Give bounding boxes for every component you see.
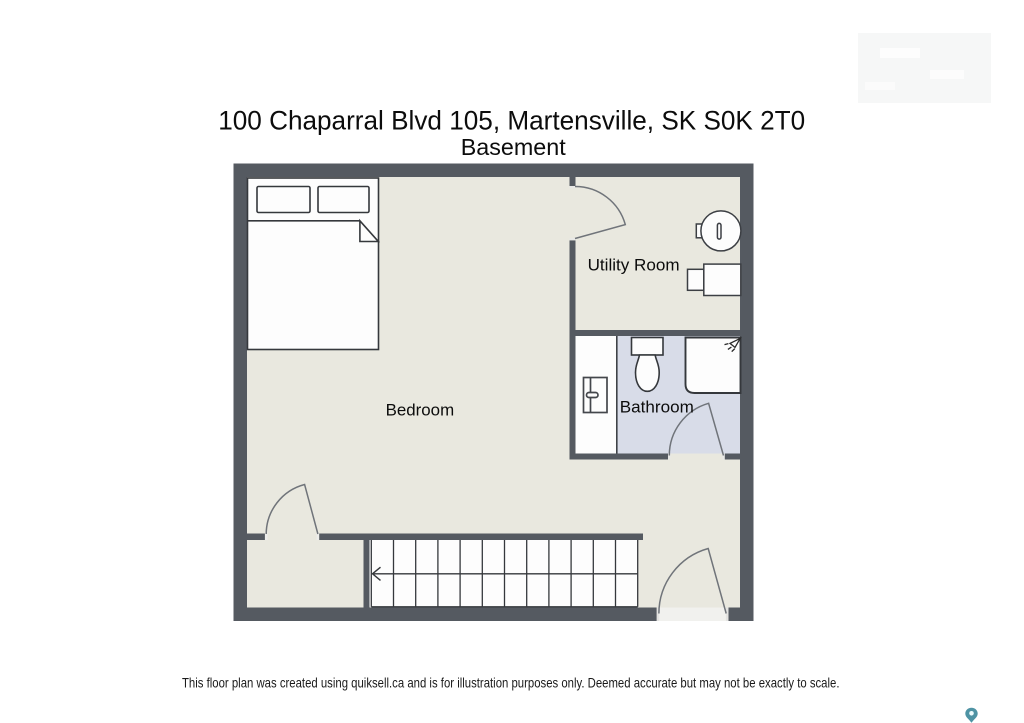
svg-text:Utility Room: Utility Room — [588, 256, 680, 275]
svg-text:This floor plan was created us: This floor plan was created using quikse… — [182, 675, 840, 691]
svg-text:Bathroom: Bathroom — [620, 398, 694, 417]
svg-text:Basement: Basement — [461, 134, 566, 160]
svg-text:100 Chaparral Blvd 105, Marten: 100 Chaparral Blvd 105, Martensville, SK… — [218, 106, 805, 136]
svg-text:Bedroom: Bedroom — [386, 400, 455, 419]
